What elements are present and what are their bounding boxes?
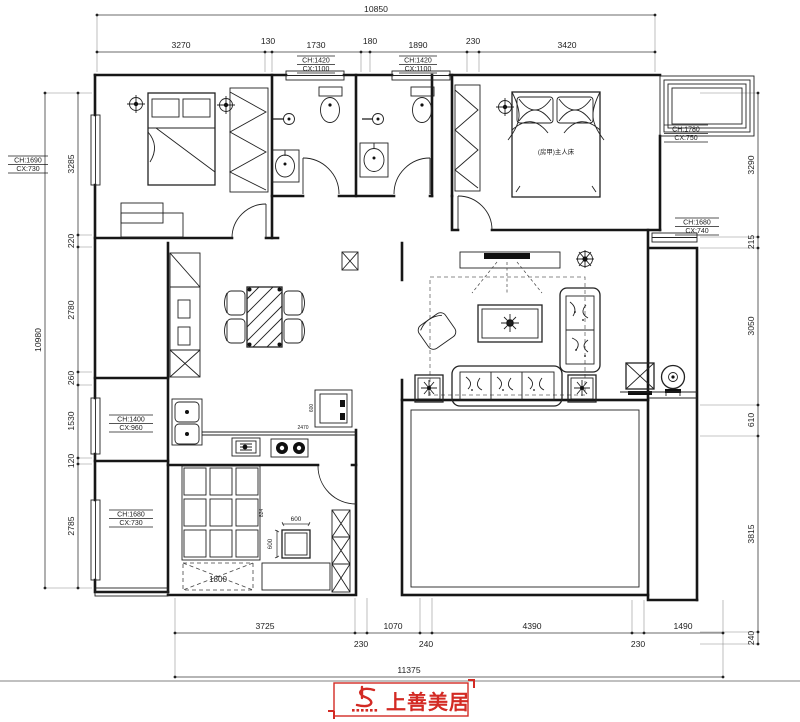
laundry-area	[620, 363, 697, 398]
ceiling-light-icon	[496, 98, 514, 116]
brand-name: 上善美居	[386, 690, 470, 714]
bedroom-left	[121, 88, 268, 237]
master-bed-label: (房甲)主人床	[538, 147, 575, 156]
dining-chair	[284, 291, 305, 315]
dim-top-seg4: 1890	[408, 40, 427, 50]
washing-machine-icon	[662, 366, 685, 397]
dining-area	[170, 253, 305, 377]
door-master	[458, 196, 492, 230]
storage-column-icon	[332, 510, 350, 592]
dim-right-seg3: 610	[746, 413, 756, 428]
dim-wardrobe-1800: 1800	[209, 575, 227, 584]
svg-text:CH:1420: CH:1420	[302, 58, 330, 65]
svg-text:CX:740: CX:740	[685, 228, 708, 235]
svg-text:CH:1680: CH:1680	[683, 220, 711, 227]
svg-text:CX:730: CX:730	[16, 166, 39, 173]
duct-shaft	[342, 252, 358, 270]
window-tag-left-mid: CH:1400 CX:960	[109, 415, 153, 432]
door-bath1	[303, 158, 339, 194]
shower-icon	[273, 114, 295, 125]
svg-text:CX:750: CX:750	[674, 135, 697, 142]
dim-top-seg1: 130	[261, 36, 276, 46]
dim-bottom-seg6: 1490	[673, 621, 692, 631]
dim-bottom-seg0: 3725	[255, 621, 274, 631]
dim-bottom-seg4: 4390	[522, 621, 541, 631]
counter-edge	[202, 432, 356, 435]
svg-text:CH:1680: CH:1680	[117, 512, 145, 519]
window-tag-left-bottom: CH:1680 CX:730	[109, 510, 153, 527]
dim-bottom-seg1: 230	[354, 639, 369, 649]
bathroom-2	[360, 87, 434, 177]
master-bed: (房甲)主人床	[508, 92, 604, 197]
walls	[95, 75, 697, 600]
dim-top-seg2: 1730	[306, 40, 325, 50]
window-bottom-left	[95, 588, 168, 596]
svg-text:CH:1420: CH:1420	[404, 58, 432, 65]
shoe-cabinet-icon	[626, 363, 654, 395]
door-kitchen-balcony	[318, 466, 356, 504]
wardrobe-icon	[230, 88, 268, 192]
floor-plan-canvas: 10850 3270 130 1730 180 1890 230 3420 10…	[0, 0, 800, 722]
window-left-top	[91, 115, 100, 185]
svg-text:CH:1780: CH:1780	[672, 127, 700, 134]
dim-top-seg6: 3420	[557, 40, 576, 50]
dimension-left: 10980 3285 220 2780 260 1530 120 2785	[33, 92, 79, 590]
sofa-three-seat	[452, 366, 562, 406]
kitchen-balcony: 824 600 600 1800	[182, 466, 350, 592]
dim-top-seg5: 230	[466, 36, 481, 46]
toilet-icon	[319, 87, 342, 123]
washer-position-dashed: 1800	[183, 563, 253, 590]
dining-chair	[225, 291, 246, 315]
dim-bottom-seg5: 230	[631, 639, 646, 649]
svg-text:CX:1100: CX:1100	[303, 66, 330, 73]
floor-plan-screenshot: 10850 3270 130 1730 180 1890 230 3420 10…	[0, 0, 800, 722]
living-room	[415, 250, 600, 406]
balcony-counter	[262, 563, 330, 590]
window-left-bottom	[91, 500, 100, 580]
dim-square-h: 600	[267, 538, 274, 549]
window-left-mid	[91, 398, 100, 454]
dining-table	[247, 287, 282, 347]
master-bedroom: (房甲)主人床	[455, 85, 604, 197]
bed	[148, 93, 215, 185]
window-tag-right-mid: CH:1680 CX:740	[675, 218, 719, 235]
dim-counter: 2470	[297, 425, 308, 431]
dim-square-w: 600	[291, 516, 302, 523]
ceiling-light-icon	[127, 95, 145, 113]
desk	[121, 203, 183, 237]
kitchen: 2470 600	[172, 390, 356, 457]
door-bath2	[394, 158, 430, 194]
dim-right-seg2: 3050	[746, 316, 756, 335]
toilet-icon	[411, 87, 434, 123]
small-appliance-icon	[232, 438, 260, 456]
dim-left-seg1: 220	[66, 234, 76, 249]
plant-icon	[576, 250, 594, 268]
wardrobe-icon	[455, 85, 480, 191]
svg-text:CX:1100: CX:1100	[405, 66, 432, 73]
window-tag-left-top: CH:1690 CX:730	[8, 156, 48, 173]
tile-grid: 824	[182, 466, 265, 560]
side-table	[415, 375, 443, 402]
dimension-bottom: 3725 230 1070 240 4390 230 1490 11375	[174, 621, 725, 678]
dim-left-seg3: 260	[66, 371, 76, 386]
dim-left-seg4: 1530	[66, 411, 76, 430]
dim-left-seg0: 3285	[66, 154, 76, 173]
dining-chair	[284, 319, 305, 343]
coffee-table	[478, 305, 542, 342]
svg-text:CH:1690: CH:1690	[14, 158, 42, 165]
window-tags: CH:1420 CX:1100 CH:1420 CX:1100 CH:1690 …	[8, 56, 719, 527]
svg-text:CX:730: CX:730	[119, 520, 142, 527]
dim-tile: 824	[259, 509, 265, 518]
dim-bottom-overall: 11375	[397, 665, 420, 675]
dim-bottom-seg3: 240	[419, 639, 434, 649]
door-bedroom-left	[232, 204, 266, 238]
square-600: 600 600	[267, 516, 310, 558]
dim-top-seg3: 180	[363, 36, 378, 46]
dim-right-seg4: 3815	[746, 524, 756, 543]
dimension-right: 3290 215 3050 610 3815 240	[746, 92, 759, 646]
bathroom-1	[272, 87, 342, 182]
window-tag-bath1: CH:1420 CX:1100	[297, 56, 335, 73]
base-cabinet-icon: 600	[309, 390, 352, 427]
sofa-two-seat	[560, 288, 600, 372]
dim-top-overall: 10850	[364, 4, 388, 14]
dimension-top: 10850 3270 130 1730 180 1890 230 3420	[96, 4, 657, 53]
tall-cabinet	[170, 253, 200, 377]
dim-bottom-seg2: 1070	[383, 621, 402, 631]
washbasin-icon	[360, 143, 388, 177]
ceiling-light-icon	[217, 96, 235, 114]
side-table	[568, 375, 596, 402]
dim-top-seg0: 3270	[171, 40, 190, 50]
dim-left-seg6: 2785	[66, 516, 76, 535]
kitchen-sink-icon	[172, 399, 202, 445]
dim-left-seg5: 120	[66, 454, 76, 469]
dim-right-seg1: 215	[746, 235, 756, 250]
dim-appliance: 600	[309, 404, 315, 413]
svg-text:CX:960: CX:960	[119, 425, 142, 432]
armchair	[416, 310, 458, 351]
dim-right-seg0: 3290	[746, 155, 756, 174]
dim-right-seg5: 240	[746, 631, 756, 646]
dining-chair	[225, 319, 246, 343]
dim-left-overall: 10980	[33, 328, 43, 352]
brand-logo: 上善美居	[328, 680, 474, 719]
shower-icon	[362, 114, 384, 125]
window-tag-bath2: CH:1420 CX:1100	[399, 56, 437, 73]
washbasin-icon	[272, 150, 299, 182]
footer: 上善美居	[0, 680, 800, 719]
stove-icon	[271, 439, 308, 457]
tv-cabinet	[460, 252, 560, 293]
dim-left-seg2: 2780	[66, 300, 76, 319]
svg-text:CH:1400: CH:1400	[117, 417, 145, 424]
logo-s-icon	[352, 687, 377, 712]
